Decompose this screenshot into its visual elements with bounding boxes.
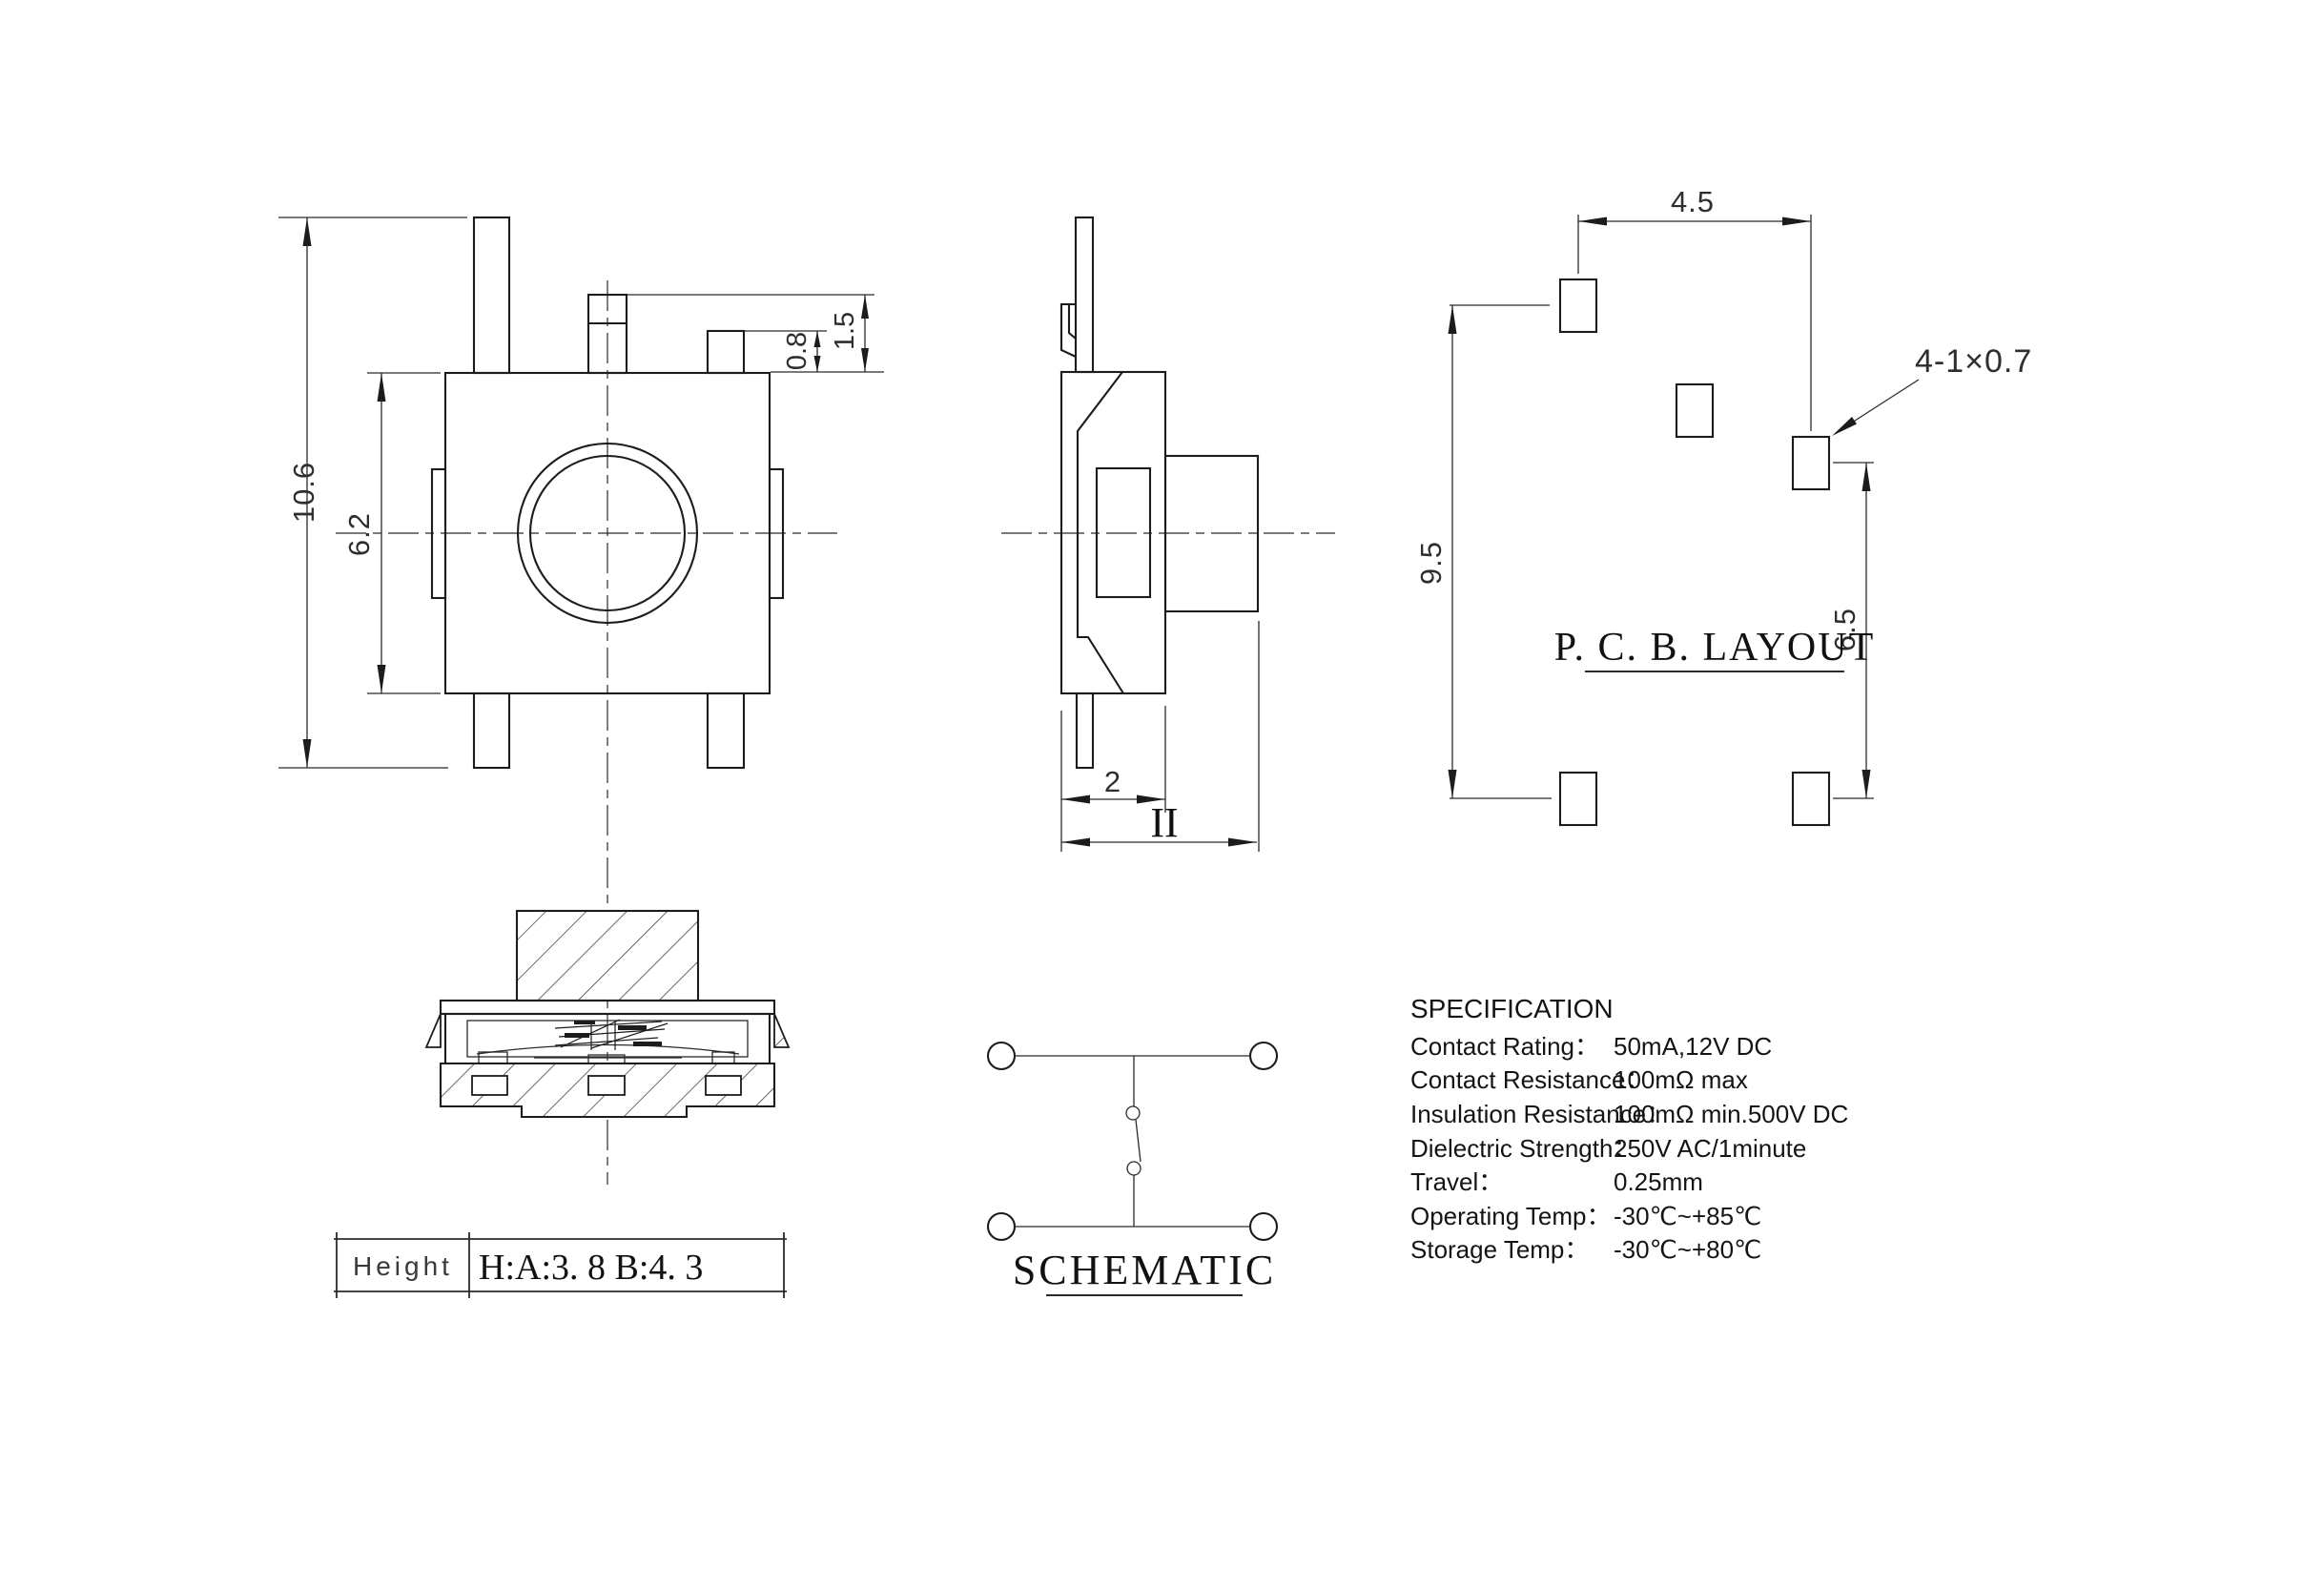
spec-title: SPECIFICATION xyxy=(1410,994,1614,1023)
engineering-drawing-sheet: 10.6 6.2 0.8 1.5 xyxy=(0,0,2324,1569)
side-top-pin xyxy=(1076,217,1093,372)
side-bottom-pin xyxy=(1077,693,1093,768)
dim-label-6-2: 6.2 xyxy=(342,512,376,556)
spec-row-value: -30℃~+80℃ xyxy=(1614,1235,1761,1264)
spec-row-value: 100mΩ max xyxy=(1614,1065,1748,1094)
front-view: 10.6 6.2 0.8 1.5 xyxy=(278,217,884,1185)
section-right-foot xyxy=(712,1052,734,1063)
spec-row-value: 50mA,12V DC xyxy=(1614,1032,1772,1061)
dim-total-width: II xyxy=(1061,621,1259,852)
schematic-view: SCHEMATIC xyxy=(988,1043,1277,1295)
dim-label-0-8: 0.8 xyxy=(782,332,812,370)
schematic-switch-arm xyxy=(1136,1120,1141,1162)
section-pad-center xyxy=(588,1076,625,1095)
spec-row-label: Operating Temp： xyxy=(1410,1202,1612,1230)
dim-label-II: II xyxy=(1150,799,1178,846)
spec-row-value: 100mΩ min.500V DC xyxy=(1614,1100,1848,1128)
section-center-foot xyxy=(588,1055,625,1063)
side-view: 2 II xyxy=(1001,217,1335,852)
spec-row-label: Storage Temp： xyxy=(1410,1235,1589,1264)
drawing-canvas: 10.6 6.2 0.8 1.5 xyxy=(0,0,2324,1569)
schematic-terminal-top-left xyxy=(988,1043,1015,1069)
section-left-wedge xyxy=(426,1014,441,1047)
dim-label-1-5: 1.5 xyxy=(830,312,860,350)
pcb-pad-top-left xyxy=(1560,279,1596,332)
pcb-hole-callout: 4-1×0.7 xyxy=(1832,343,2032,436)
pcb-layout-view: 4.5 9.5 6.5 4-1×0.7 P. C. B. LAYOUT xyxy=(1414,185,2032,825)
dim-pcb-horizontal-pitch: 4.5 xyxy=(1578,185,1811,431)
section-view xyxy=(426,911,789,1117)
schematic-terminal-top-right xyxy=(1250,1043,1277,1069)
dim-label-2: 2 xyxy=(1104,765,1121,798)
bottom-right-pin xyxy=(708,693,744,768)
schematic-contact-upper xyxy=(1126,1106,1140,1120)
spec-row-label: Travel： xyxy=(1410,1167,1503,1196)
dim-label-4-5: 4.5 xyxy=(1671,185,1715,218)
spec-row-value: 0.25mm xyxy=(1614,1167,1703,1196)
spec-row-value: -30℃~+85℃ xyxy=(1614,1202,1761,1230)
bottom-left-pin xyxy=(474,693,509,768)
section-pad-right xyxy=(706,1076,741,1095)
dim-label-10-6: 10.6 xyxy=(287,462,320,523)
dim-pin-heights: 0.8 1.5 xyxy=(627,295,884,372)
spec-row-label: Dielectric Strength： xyxy=(1410,1134,1637,1163)
section-right-wedge xyxy=(774,1014,789,1047)
spec-row-label: Contact Rating： xyxy=(1410,1032,1599,1061)
schematic-terminal-bottom-left xyxy=(988,1213,1015,1240)
top-left-pin xyxy=(474,217,509,373)
dim-label-9-5: 9.5 xyxy=(1414,541,1448,585)
pcb-hole-callout-label: 4-1×0.7 xyxy=(1915,343,2032,380)
pcb-pad-center xyxy=(1676,384,1713,437)
section-button-hatched xyxy=(517,911,698,1001)
side-pin-flange-inner xyxy=(1069,304,1076,339)
pcb-pad-bottom-left xyxy=(1560,773,1596,825)
pcb-pad-right xyxy=(1793,437,1829,489)
schematic-contact-lower xyxy=(1127,1162,1141,1175)
schematic-title: SCHEMATIC xyxy=(1013,1247,1276,1293)
pcb-layout-title: P. C. B. LAYOUT xyxy=(1554,626,1876,670)
height-table: Height H:A:3. 8 B:4. 3 xyxy=(334,1232,787,1298)
section-pad-left xyxy=(472,1076,507,1095)
dim-pcb-vertical-pitch: 9.5 xyxy=(1414,305,1552,798)
height-table-value: H:A:3. 8 B:4. 3 xyxy=(479,1248,703,1288)
spec-panel: SPECIFICATION Contact Rating： 50mA,12V D… xyxy=(1410,994,1848,1264)
section-left-foot xyxy=(479,1052,507,1063)
dim-overall-height: 10.6 xyxy=(278,217,467,768)
spec-row-value: 250V AC/1minute xyxy=(1614,1134,1806,1163)
pcb-pad-bottom-right xyxy=(1793,773,1829,825)
top-right-bump xyxy=(708,331,744,373)
schematic-terminal-bottom-right xyxy=(1250,1213,1277,1240)
height-table-label: Height xyxy=(353,1251,453,1281)
